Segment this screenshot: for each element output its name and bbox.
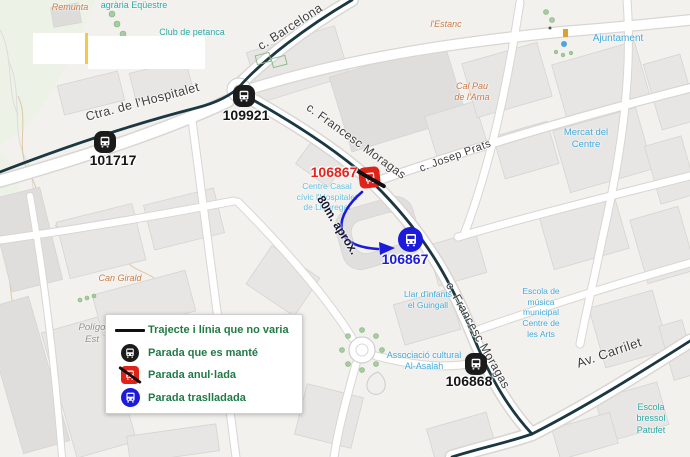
bus-icon	[403, 232, 419, 248]
poi-label-associacio: Associació cultural Al-Asalah	[387, 350, 462, 373]
poi-label-remunta: Remunta	[52, 2, 89, 13]
bus-stop-icon-106867-moved	[398, 227, 423, 252]
redacted-label-box	[88, 36, 205, 69]
bus-stop-code-106867-moved: 106867	[382, 251, 429, 267]
bus-stop-code-106867-cancelled: 106867	[311, 164, 358, 180]
poi-label-mercat-centre: Mercat del Centre	[564, 127, 608, 151]
road-sliver	[85, 33, 88, 64]
legend-item-cancelled: Parada anul·lada	[112, 364, 296, 386]
bus-icon	[469, 357, 483, 371]
poi-label-cal-pau: Cal Pau de l'Arna	[454, 81, 489, 104]
poi-label-estanc: l'Estanc	[430, 19, 461, 30]
legend-item-label: Parada que es manté	[148, 347, 258, 359]
legend-item-label: Parada anul·lada	[148, 369, 236, 381]
legend-item-label: Trajecte i línia que no varia	[148, 324, 289, 336]
poi-label-llar-infants: Llar d'infants el Guingall	[404, 289, 452, 310]
legend-item-route: Trajecte i línia que no varia	[112, 319, 296, 341]
bus-icon	[98, 135, 112, 149]
bus-stop-code-106868: 106868	[446, 373, 493, 389]
legend-item-label: Parada traslladada	[148, 392, 246, 404]
bus-stop-icon-106867-cancelled	[358, 166, 381, 189]
poi-label-can-girald: Can Girald	[98, 273, 141, 284]
legend-item-kept: Parada que es manté	[112, 342, 296, 364]
bus-icon	[237, 89, 251, 103]
cancelled-stop-icon	[112, 366, 148, 384]
poi-label-agraria-equestre: agrària Eqüestre	[101, 0, 168, 11]
bus-icon	[124, 391, 137, 404]
route-line-icon	[112, 329, 148, 333]
redacted-label-box	[33, 33, 86, 64]
bus-detour-map: Ctra. de l'Hospitalet c. Barcelona c. Fr…	[0, 0, 690, 457]
bus-stop-icon-109921	[233, 85, 255, 107]
poi-label-escola-bressol: Escola bressol Patufet	[632, 402, 671, 436]
legend-item-moved: Parada traslladada	[112, 387, 296, 409]
bus-stop-code-109921: 109921	[223, 107, 270, 123]
moved-stop-icon	[112, 388, 148, 407]
bus-stop-code-101717: 101717	[90, 152, 137, 168]
kept-stop-icon	[112, 344, 148, 362]
poi-label-poligon: Polígo Est	[79, 322, 106, 346]
poi-label-club-petanca: Club de petanca	[159, 27, 225, 38]
bus-stop-icon-101717	[94, 131, 116, 153]
bus-icon	[124, 347, 136, 359]
legend-panel: Trajecte i línia que no varia Parada que…	[105, 314, 303, 414]
poi-label-escola-musica: Escola de música municipal Centre de les…	[522, 286, 559, 339]
poi-label-ajuntament: Ajuntament	[593, 33, 644, 46]
bus-stop-icon-106868	[465, 353, 487, 375]
